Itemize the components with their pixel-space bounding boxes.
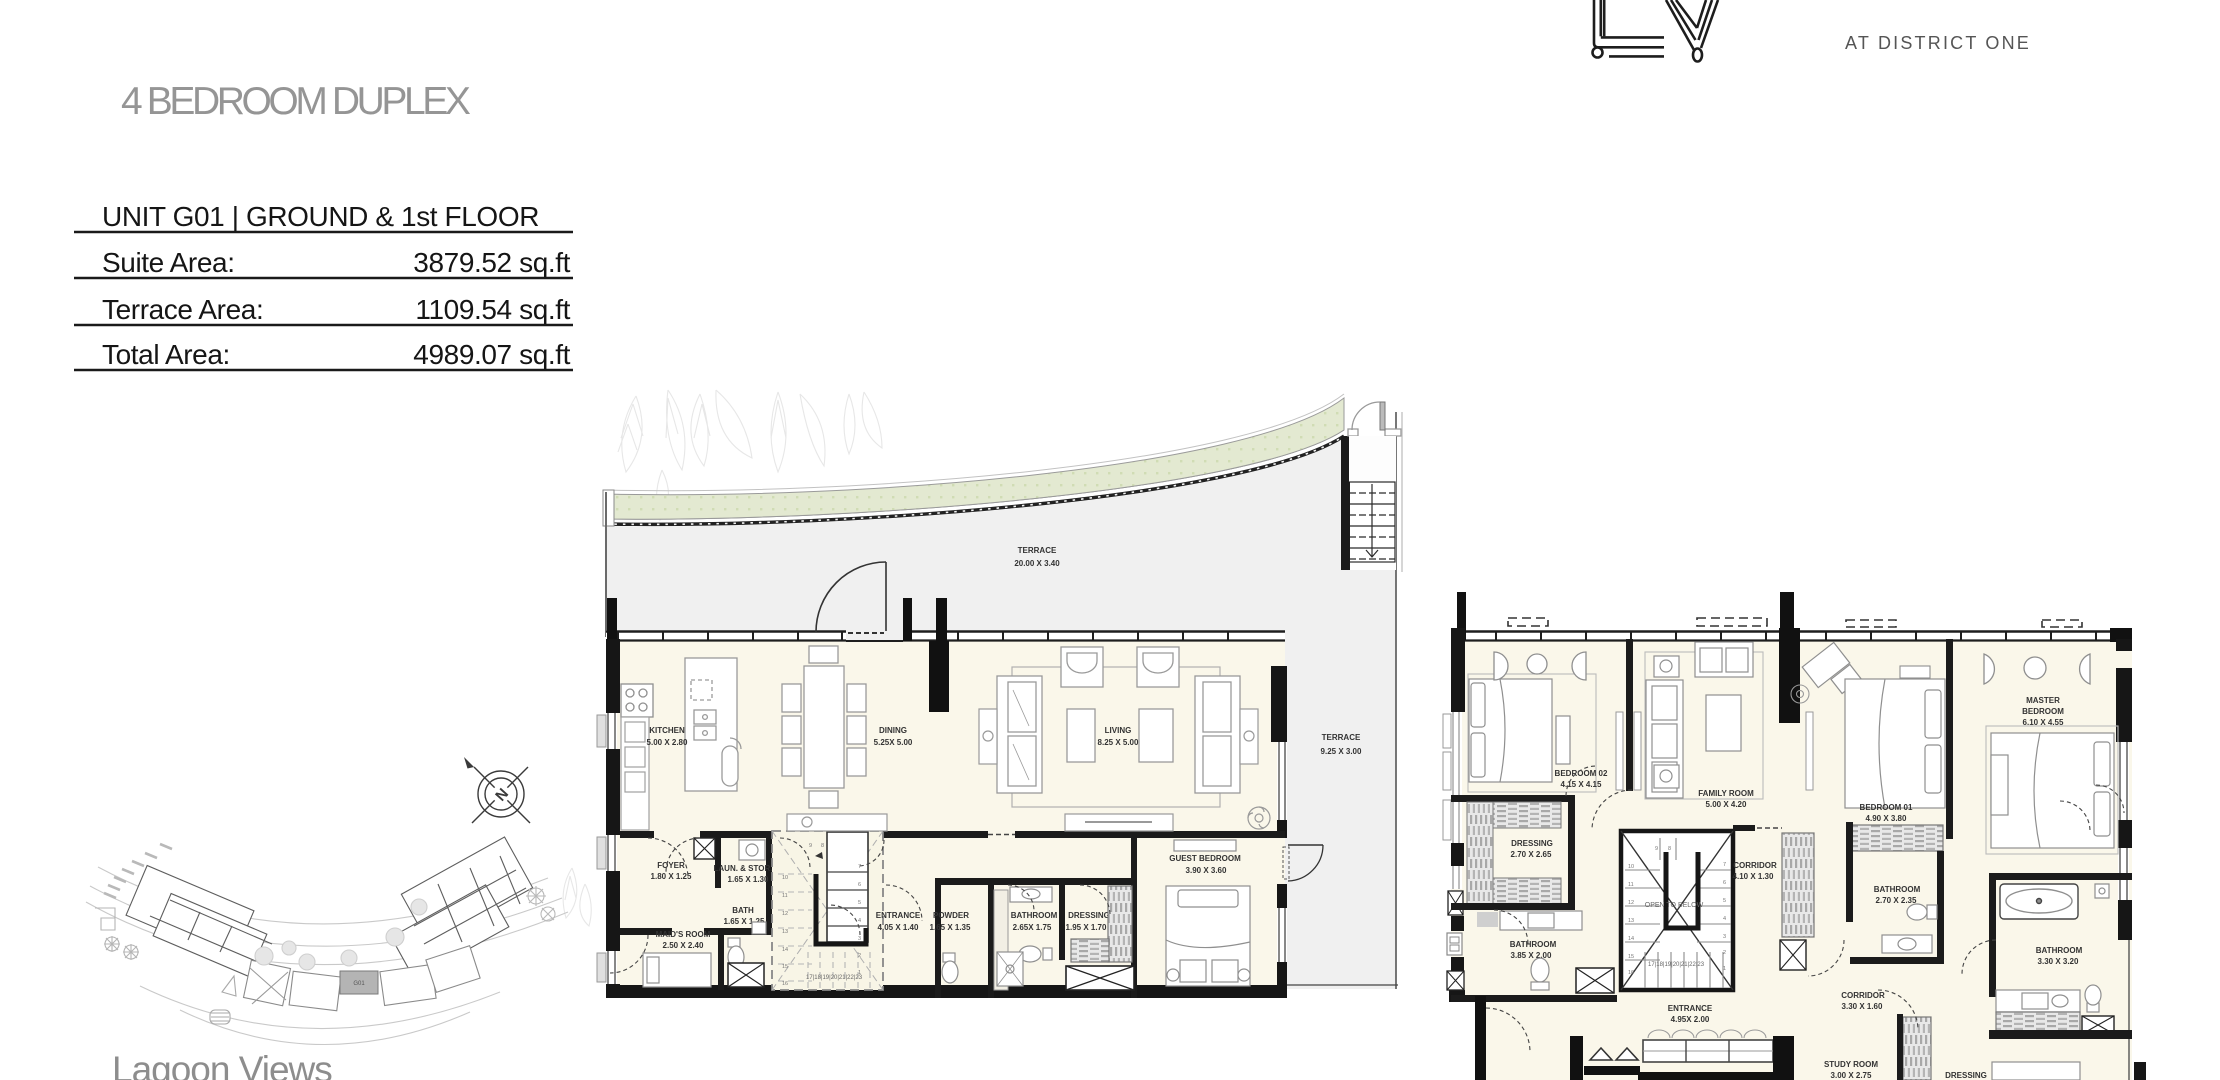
svg-text:17|18|19|20|21|22|23: 17|18|19|20|21|22|23 (1648, 962, 1705, 968)
svg-text:11: 11 (1628, 882, 1634, 888)
svg-text:2.70 X 2.35: 2.70 X 2.35 (1876, 896, 1917, 905)
svg-text:TERRACE: TERRACE (1322, 733, 1361, 742)
svg-text:5.25X 5.00: 5.25X 5.00 (874, 738, 913, 747)
svg-text:4: 4 (1723, 916, 1726, 922)
svg-text:2.65X 1.75: 2.65X 1.75 (1013, 923, 1052, 932)
svg-text:3879.52 sq.ft: 3879.52 sq.ft (413, 247, 570, 278)
svg-text:7: 7 (1723, 862, 1726, 868)
svg-text:BEDROOM: BEDROOM (2022, 707, 2064, 716)
svg-text:2.70 X 2.65: 2.70 X 2.65 (1511, 850, 1552, 859)
svg-text:3: 3 (858, 936, 861, 942)
svg-text:4.90 X 3.80: 4.90 X 3.80 (1866, 814, 1907, 823)
svg-text:15: 15 (782, 964, 788, 970)
svg-text:7: 7 (858, 864, 861, 870)
svg-text:6: 6 (1723, 880, 1726, 886)
svg-text:3.85 X 2.00: 3.85 X 2.00 (1511, 951, 1552, 960)
svg-text:Lagoon Views: Lagoon Views (112, 1049, 332, 1080)
svg-text:DRESSING: DRESSING (1068, 911, 1110, 920)
svg-text:DINING: DINING (879, 726, 907, 735)
svg-text:DRESSING: DRESSING (1511, 839, 1553, 848)
svg-text:ENTRANCE: ENTRANCE (876, 911, 921, 920)
svg-text:1.65 X 1.30: 1.65 X 1.30 (728, 875, 769, 884)
svg-text:FOYER: FOYER (657, 861, 685, 870)
svg-text:LAUN. & STOR.: LAUN. & STOR. (714, 864, 773, 873)
svg-text:BEDROOM 01: BEDROOM 01 (1860, 803, 1913, 812)
svg-text:13: 13 (1628, 918, 1634, 924)
svg-text:STUDY ROOM: STUDY ROOM (1824, 1060, 1878, 1069)
svg-text:FAMILY ROOM: FAMILY ROOM (1698, 789, 1754, 798)
svg-text:6: 6 (858, 882, 861, 888)
svg-text:BATHROOM: BATHROOM (1011, 911, 1058, 920)
svg-text:15: 15 (1628, 954, 1634, 960)
svg-text:5: 5 (858, 900, 861, 906)
svg-text:9: 9 (809, 843, 812, 849)
svg-text:5.00 X 4.20: 5.00 X 4.20 (1706, 800, 1747, 809)
svg-text:4.95X 2.00: 4.95X 2.00 (1671, 1015, 1710, 1024)
svg-text:TERRACE: TERRACE (1018, 546, 1057, 555)
svg-text:4 BEDROOM DUPLEX: 4 BEDROOM DUPLEX (121, 80, 471, 123)
svg-text:KITCHEN: KITCHEN (649, 726, 685, 735)
svg-text:14: 14 (1628, 936, 1634, 942)
svg-text:3.90 X 3.60: 3.90 X 3.60 (1186, 866, 1227, 875)
svg-text:Terrace Area:: Terrace Area: (102, 294, 263, 325)
svg-text:13: 13 (782, 929, 788, 935)
svg-text:UNIT G01 | GROUND & 1st FLOOR: UNIT G01 | GROUND & 1st FLOOR (102, 201, 539, 232)
svg-text:12: 12 (782, 911, 788, 917)
svg-text:BATH: BATH (732, 906, 754, 915)
svg-text:14: 14 (782, 947, 788, 953)
svg-text:5: 5 (1723, 898, 1726, 904)
svg-text:1.95 X 1.70: 1.95 X 1.70 (1066, 923, 1107, 932)
svg-text:16: 16 (1628, 970, 1634, 976)
svg-text:8.25 X 5.00: 8.25 X 5.00 (1098, 738, 1139, 747)
svg-text:12: 12 (1628, 900, 1634, 906)
svg-text:CORRIDOR: CORRIDOR (1733, 861, 1777, 870)
svg-text:BATHROOM: BATHROOM (2036, 946, 2083, 955)
svg-text:4989.07 sq.ft: 4989.07 sq.ft (413, 339, 570, 370)
svg-text:11: 11 (782, 893, 788, 899)
svg-text:20.00 X 3.40: 20.00 X 3.40 (1014, 559, 1060, 568)
svg-text:16: 16 (782, 981, 788, 987)
svg-text:4.05 X 1.40: 4.05 X 1.40 (878, 923, 919, 932)
svg-text:10: 10 (782, 875, 788, 881)
svg-text:ENTRANCE: ENTRANCE (1668, 1004, 1713, 1013)
svg-text:10: 10 (1628, 864, 1634, 870)
svg-text:9: 9 (1655, 846, 1658, 852)
svg-text:8: 8 (1668, 846, 1671, 852)
svg-text:3.30 X 3.20: 3.30 X 3.20 (2038, 957, 2079, 966)
svg-text:3.00 X 2.75: 3.00 X 2.75 (1831, 1071, 1872, 1080)
svg-text:3: 3 (1723, 934, 1726, 940)
svg-text:17|18|19|20|21|22|23: 17|18|19|20|21|22|23 (806, 975, 863, 981)
svg-text:CORRIDOR: CORRIDOR (1841, 991, 1885, 1000)
svg-text:MASTER: MASTER (2026, 696, 2060, 705)
svg-text:AT DISTRICT ONE: AT DISTRICT ONE (1845, 33, 2031, 53)
svg-text:GUEST BEDROOM: GUEST BEDROOM (1169, 854, 1241, 863)
svg-text:2.50 X 2.40: 2.50 X 2.40 (663, 941, 704, 950)
svg-text:BATHROOM: BATHROOM (1510, 940, 1557, 949)
svg-text:LIVING: LIVING (1105, 726, 1132, 735)
svg-text:BATHROOM: BATHROOM (1874, 885, 1921, 894)
svg-text:DRESSING: DRESSING (1945, 1071, 1987, 1080)
svg-text:1.80 X 1.25: 1.80 X 1.25 (651, 872, 692, 881)
svg-text:G01: G01 (353, 981, 365, 987)
svg-text:4.10 X 1.30: 4.10 X 1.30 (1733, 872, 1774, 881)
svg-text:4: 4 (858, 918, 861, 924)
svg-text:POWDER: POWDER (933, 911, 969, 920)
svg-text:1109.54 sq.ft: 1109.54 sq.ft (415, 294, 570, 325)
svg-text:Suite Area:: Suite Area: (102, 247, 235, 278)
svg-text:5.00 X 2.80: 5.00 X 2.80 (647, 738, 688, 747)
svg-text:9.25 X 3.00: 9.25 X 3.00 (1321, 747, 1362, 756)
svg-text:8: 8 (821, 843, 824, 849)
svg-text:Total Area:: Total Area: (102, 339, 230, 370)
svg-text:1.65 X 1.35: 1.65 X 1.35 (930, 923, 971, 932)
svg-text:MAID'S ROOM: MAID'S ROOM (656, 930, 711, 939)
svg-text:OPEN TO BELOW: OPEN TO BELOW (1645, 902, 1704, 909)
svg-text:3.30 X 1.60: 3.30 X 1.60 (1842, 1002, 1883, 1011)
